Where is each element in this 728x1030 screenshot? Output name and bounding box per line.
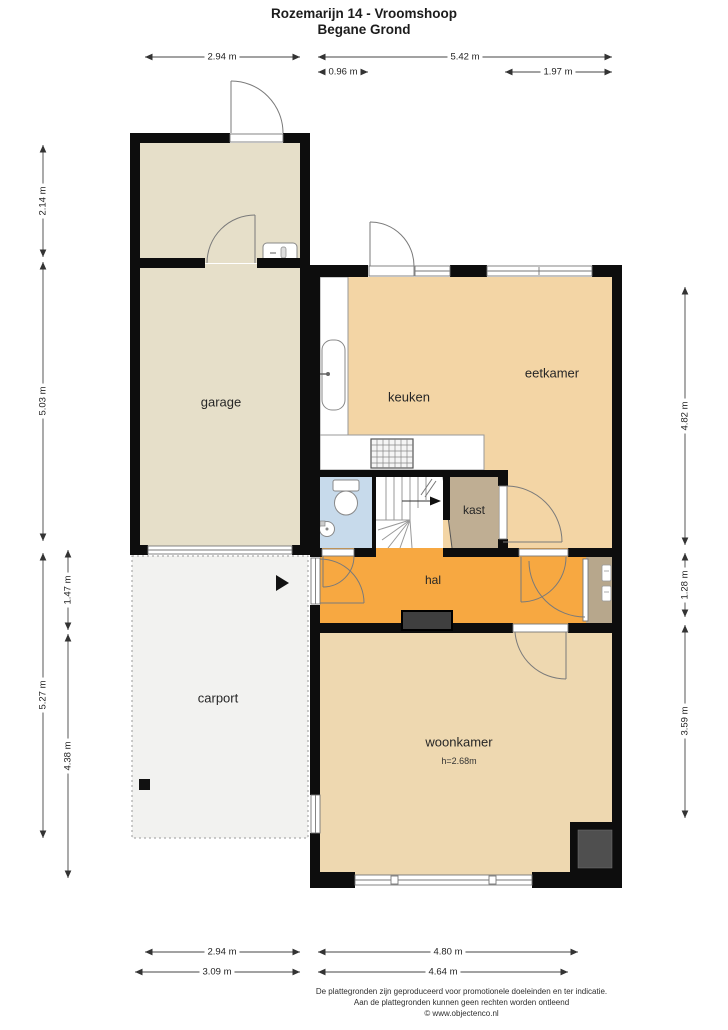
toilet-door-opening [322, 549, 354, 556]
dim-label-left-527: 5.27 m [38, 677, 49, 712]
window-living-left [311, 795, 320, 833]
hall-floor [320, 548, 612, 633]
dim-label-left-147: 1.47 m [63, 572, 74, 607]
room-label-eetkamer: eetkamer [525, 366, 579, 381]
room-label-kast: kast [463, 503, 485, 517]
dim-label-left-438: 4.38 m [63, 738, 74, 773]
closet-door-opening [499, 486, 507, 539]
dim-label-top-197: 1.97 m [540, 67, 575, 78]
footer-line-3: © www.objectenco.nl [164, 1008, 728, 1019]
window-kitchen-top [415, 266, 450, 276]
plan-subtitle: Begane Grond [0, 22, 728, 38]
toilet-bowl [335, 491, 358, 515]
garage-door [148, 546, 292, 554]
kitchen-exterior-door-opening [369, 266, 414, 276]
door-kitchen-exterior [370, 222, 414, 266]
dim-label-right-128: 1.28 m [680, 567, 691, 602]
dim-label-right-359: 3.59 m [680, 703, 691, 738]
storage-exterior-door-opening [230, 134, 283, 142]
toilet-tank [333, 480, 359, 491]
door-storage-exterior [231, 81, 283, 133]
floorplan-page: Rozemarijn 14 - Vroomshoop Begane Grond … [0, 0, 728, 1030]
dim-label-left-503: 5.03 m [38, 383, 49, 418]
footer-line-1: De plattegronden zijn geproduceerd voor … [164, 986, 728, 997]
dim-label-bottom-480: 4.80 m [430, 947, 465, 958]
side-entrance-door [311, 558, 320, 604]
room-label-garage: garage [201, 395, 241, 410]
floorplan-drawing [0, 0, 728, 1030]
dim-label-top-542: 5.42 m [447, 52, 482, 63]
dim-label-bottom-464: 4.64 m [425, 967, 460, 978]
dim-label-right-482: 4.82 m [680, 398, 691, 433]
window-living-bottom [355, 875, 532, 885]
window-dining-top [487, 266, 592, 276]
fireplace [570, 822, 620, 875]
room-label-keuken: keuken [388, 390, 430, 405]
kitchen-sink [322, 340, 345, 410]
hall-dining-door-opening [519, 549, 568, 556]
carport-post [139, 779, 150, 790]
hall-living-door-opening [513, 624, 568, 632]
footer-disclaimer: De plattegronden zijn geproduceerd voor … [164, 986, 728, 1019]
living-room-floor [320, 630, 612, 875]
front-door [583, 559, 588, 621]
dim-label-bottom-309: 3.09 m [199, 967, 234, 978]
dim-label-left-214: 2.14 m [38, 183, 49, 218]
dim-label-bottom-294: 2.94 m [204, 947, 239, 958]
stove-icon [371, 439, 413, 468]
doormat [402, 611, 452, 630]
plan-title: Rozemarijn 14 - Vroomshoop [0, 6, 728, 22]
dim-label-top-294: 2.94 m [204, 52, 239, 63]
room-label-carport: carport [198, 691, 238, 706]
title-block: Rozemarijn 14 - Vroomshoop Begane Grond [0, 6, 728, 37]
dim-label-top-096: 0.96 m [325, 67, 360, 78]
room-label-ceiling-height: h=2.68m [441, 756, 476, 766]
footer-line-2: Aan de plattegronden kunnen geen rechten… [164, 997, 728, 1008]
room-label-woonkamer: woonkamer [425, 735, 492, 750]
room-label-hal: hal [425, 573, 441, 587]
